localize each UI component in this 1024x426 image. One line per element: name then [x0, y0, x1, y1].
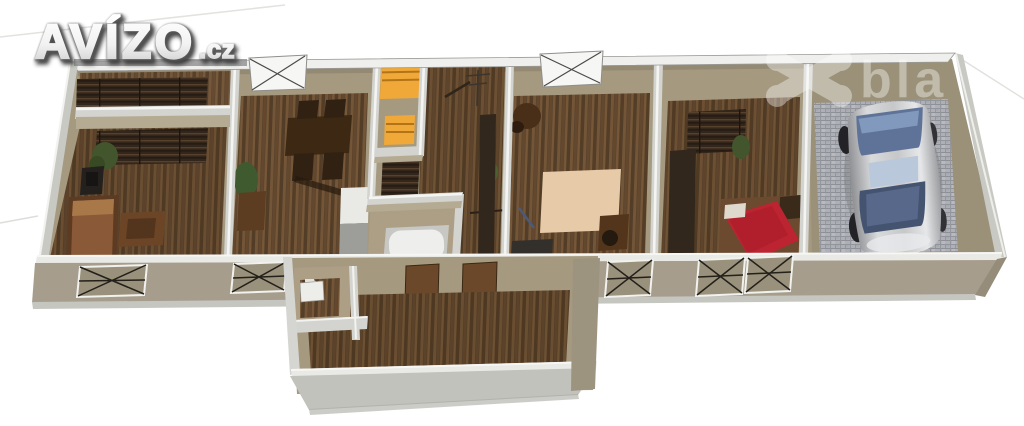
- svg-text:bla: bla: [860, 51, 947, 109]
- svg-text:AVÍZO: AVÍZO: [35, 15, 196, 69]
- svg-text:.cz: .cz: [199, 34, 235, 64]
